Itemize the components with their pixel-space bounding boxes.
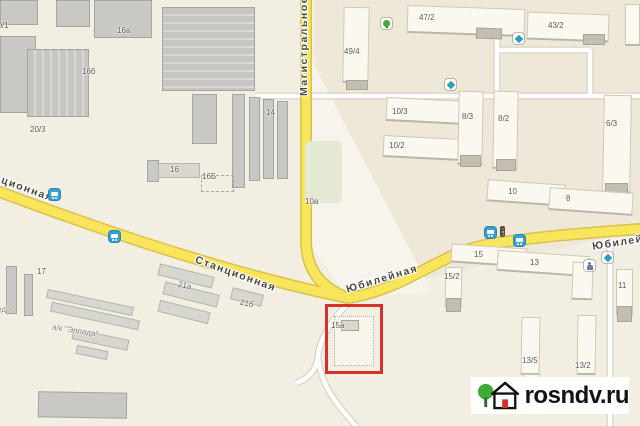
building-label: 10: [508, 187, 517, 196]
industrial-building: [232, 94, 245, 188]
building-label: 17: [37, 267, 46, 276]
building-annex: [617, 306, 632, 322]
industrial-building: [24, 274, 33, 316]
building-label: 8/3: [462, 112, 473, 121]
park-area: [305, 141, 342, 203]
building: [602, 95, 632, 193]
building-annex: [446, 298, 461, 312]
bus-stop-icon: [514, 235, 525, 246]
building-label: 13/5: [522, 356, 538, 365]
industrial-building: [27, 49, 89, 117]
building-label: 20/3: [30, 125, 46, 134]
building-label: 6/3: [606, 119, 617, 128]
building-label: 15: [474, 250, 483, 259]
building-label: 15/2: [444, 272, 460, 281]
poi-label: ед": [0, 305, 9, 314]
building-annex: [496, 159, 516, 171]
building-annex: [476, 28, 502, 40]
industrial-building: [249, 97, 260, 181]
building-annex: [346, 80, 368, 90]
building-label: 8/2: [498, 114, 509, 123]
kindergarten-icon: [602, 252, 613, 263]
house-tree-icon: [477, 380, 520, 411]
building-label: 20/1: [0, 21, 9, 30]
bus-stop-icon: [49, 189, 60, 200]
education-icon: [513, 33, 524, 44]
building-label: 13/2: [575, 361, 591, 370]
building-annex: [460, 155, 481, 167]
building-label: 10а: [305, 197, 318, 206]
building: [520, 317, 540, 375]
bus-stop-icon: [485, 227, 496, 238]
building-label: 49/4: [344, 47, 360, 56]
building-label: 14: [266, 108, 275, 117]
building-label: 13: [530, 258, 539, 267]
building: [342, 7, 369, 83]
industrial-building: [277, 101, 288, 179]
industrial-building: [56, 0, 90, 27]
building: [158, 163, 200, 178]
building: [492, 91, 518, 169]
building-label: 8: [566, 194, 570, 203]
building: [625, 4, 640, 46]
building-label: 16а: [117, 26, 130, 35]
map-base-layer: [0, 0, 640, 426]
industrial-building: [38, 391, 127, 419]
rosndv-watermark: rosndv.ru: [471, 377, 629, 414]
traffic-light-icon: [500, 226, 505, 237]
trees-icon: [381, 18, 392, 29]
playground-icon: [584, 260, 595, 271]
building-label: 10/3: [392, 107, 408, 116]
building-label: 43/2: [548, 21, 564, 30]
building-annex: [583, 34, 605, 45]
building-label: 16б: [82, 67, 95, 76]
watermark-site-text: rosndv.ru: [525, 382, 629, 410]
building-label: 10/2: [389, 141, 405, 150]
industrial-building: [192, 94, 217, 144]
industrial-building: [162, 7, 255, 91]
highlighted-parcel-label: 15а: [331, 321, 344, 330]
highlight-rectangle: [325, 304, 383, 374]
building-label: 16: [170, 165, 179, 174]
building-label: 11: [618, 281, 626, 290]
building-label: 16Б: [202, 172, 216, 181]
bus-stop-icon: [109, 231, 120, 242]
street-label-magistralnoye: Магистральное: [298, 0, 310, 96]
education-icon: [445, 79, 456, 90]
map-canvas[interactable]: 20/1 16а 16б 20/3 14 16 16Б 10а 49/4 47/…: [0, 0, 640, 426]
building-label: 47/2: [419, 13, 435, 22]
